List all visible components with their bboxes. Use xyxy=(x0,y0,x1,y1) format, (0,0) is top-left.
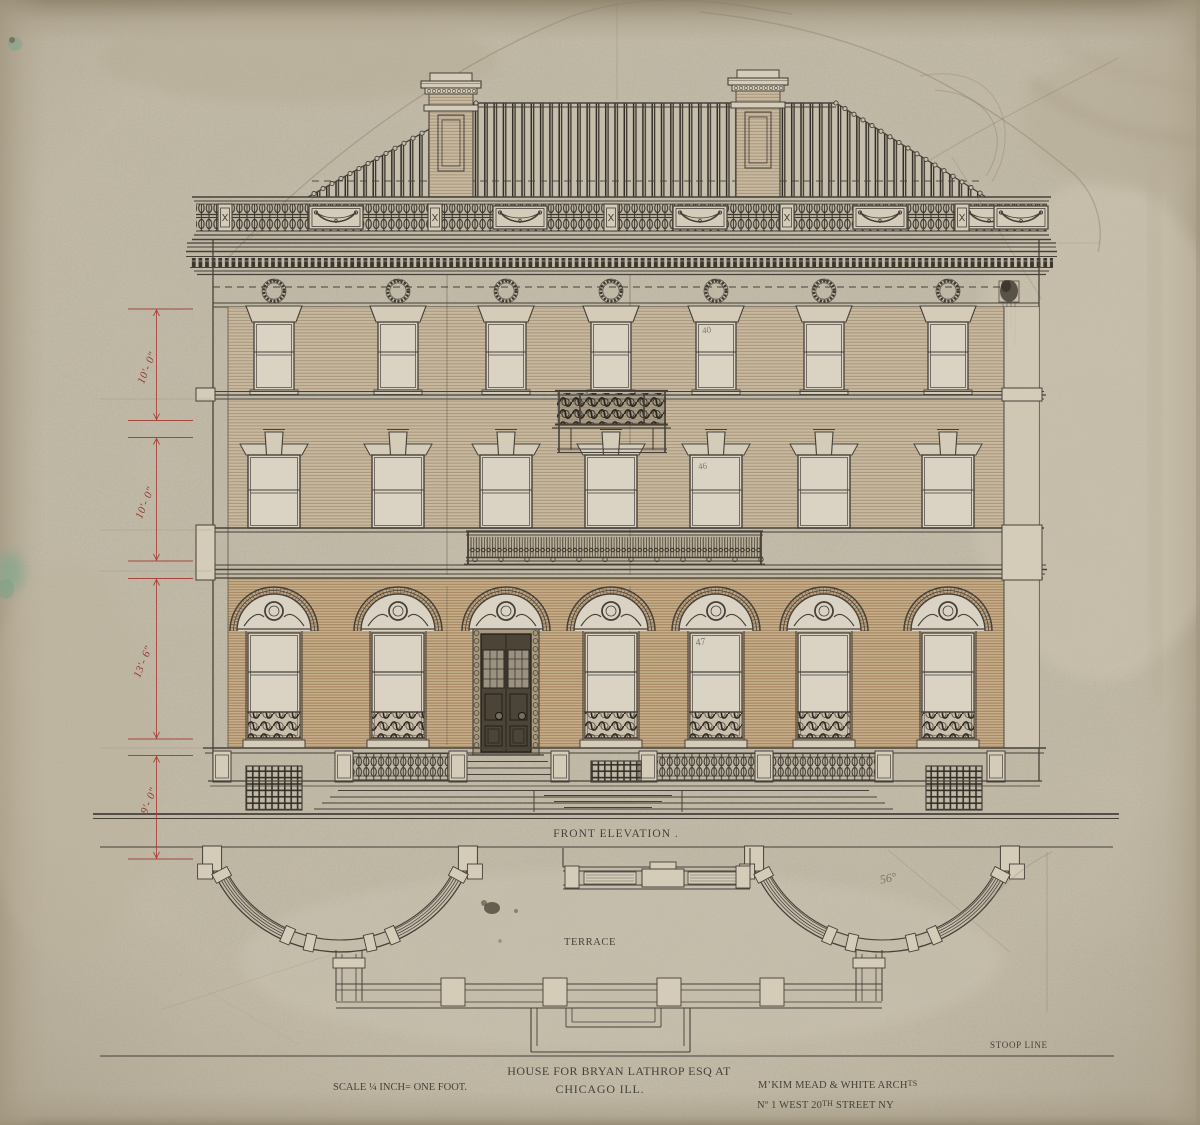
svg-text:HOUSE FOR BRYAN LATHROP ES: HOUSE FOR BRYAN LATHROP ESQ AT xyxy=(507,1064,731,1078)
svg-text:TERRACE: TERRACE xyxy=(564,937,616,948)
svg-text:47: 47 xyxy=(695,636,706,648)
svg-text:FRONT ELEVATION .: FRONT ELEVATION . xyxy=(553,828,679,840)
svg-text:CHICAGO ILL.: CHICAGO ILL. xyxy=(556,1082,645,1096)
svg-text:STOOP LINE: STOOP LINE xyxy=(990,1040,1048,1050)
svg-text:M’KIM MEAD & WHITE ARCHTS: M’KIM MEAD & WHITE ARCHTS xyxy=(758,1079,917,1091)
svg-text:SCALE ¼ INCH= ONE FOOT.: SCALE ¼ INCH= ONE FOOT. xyxy=(333,1082,467,1093)
